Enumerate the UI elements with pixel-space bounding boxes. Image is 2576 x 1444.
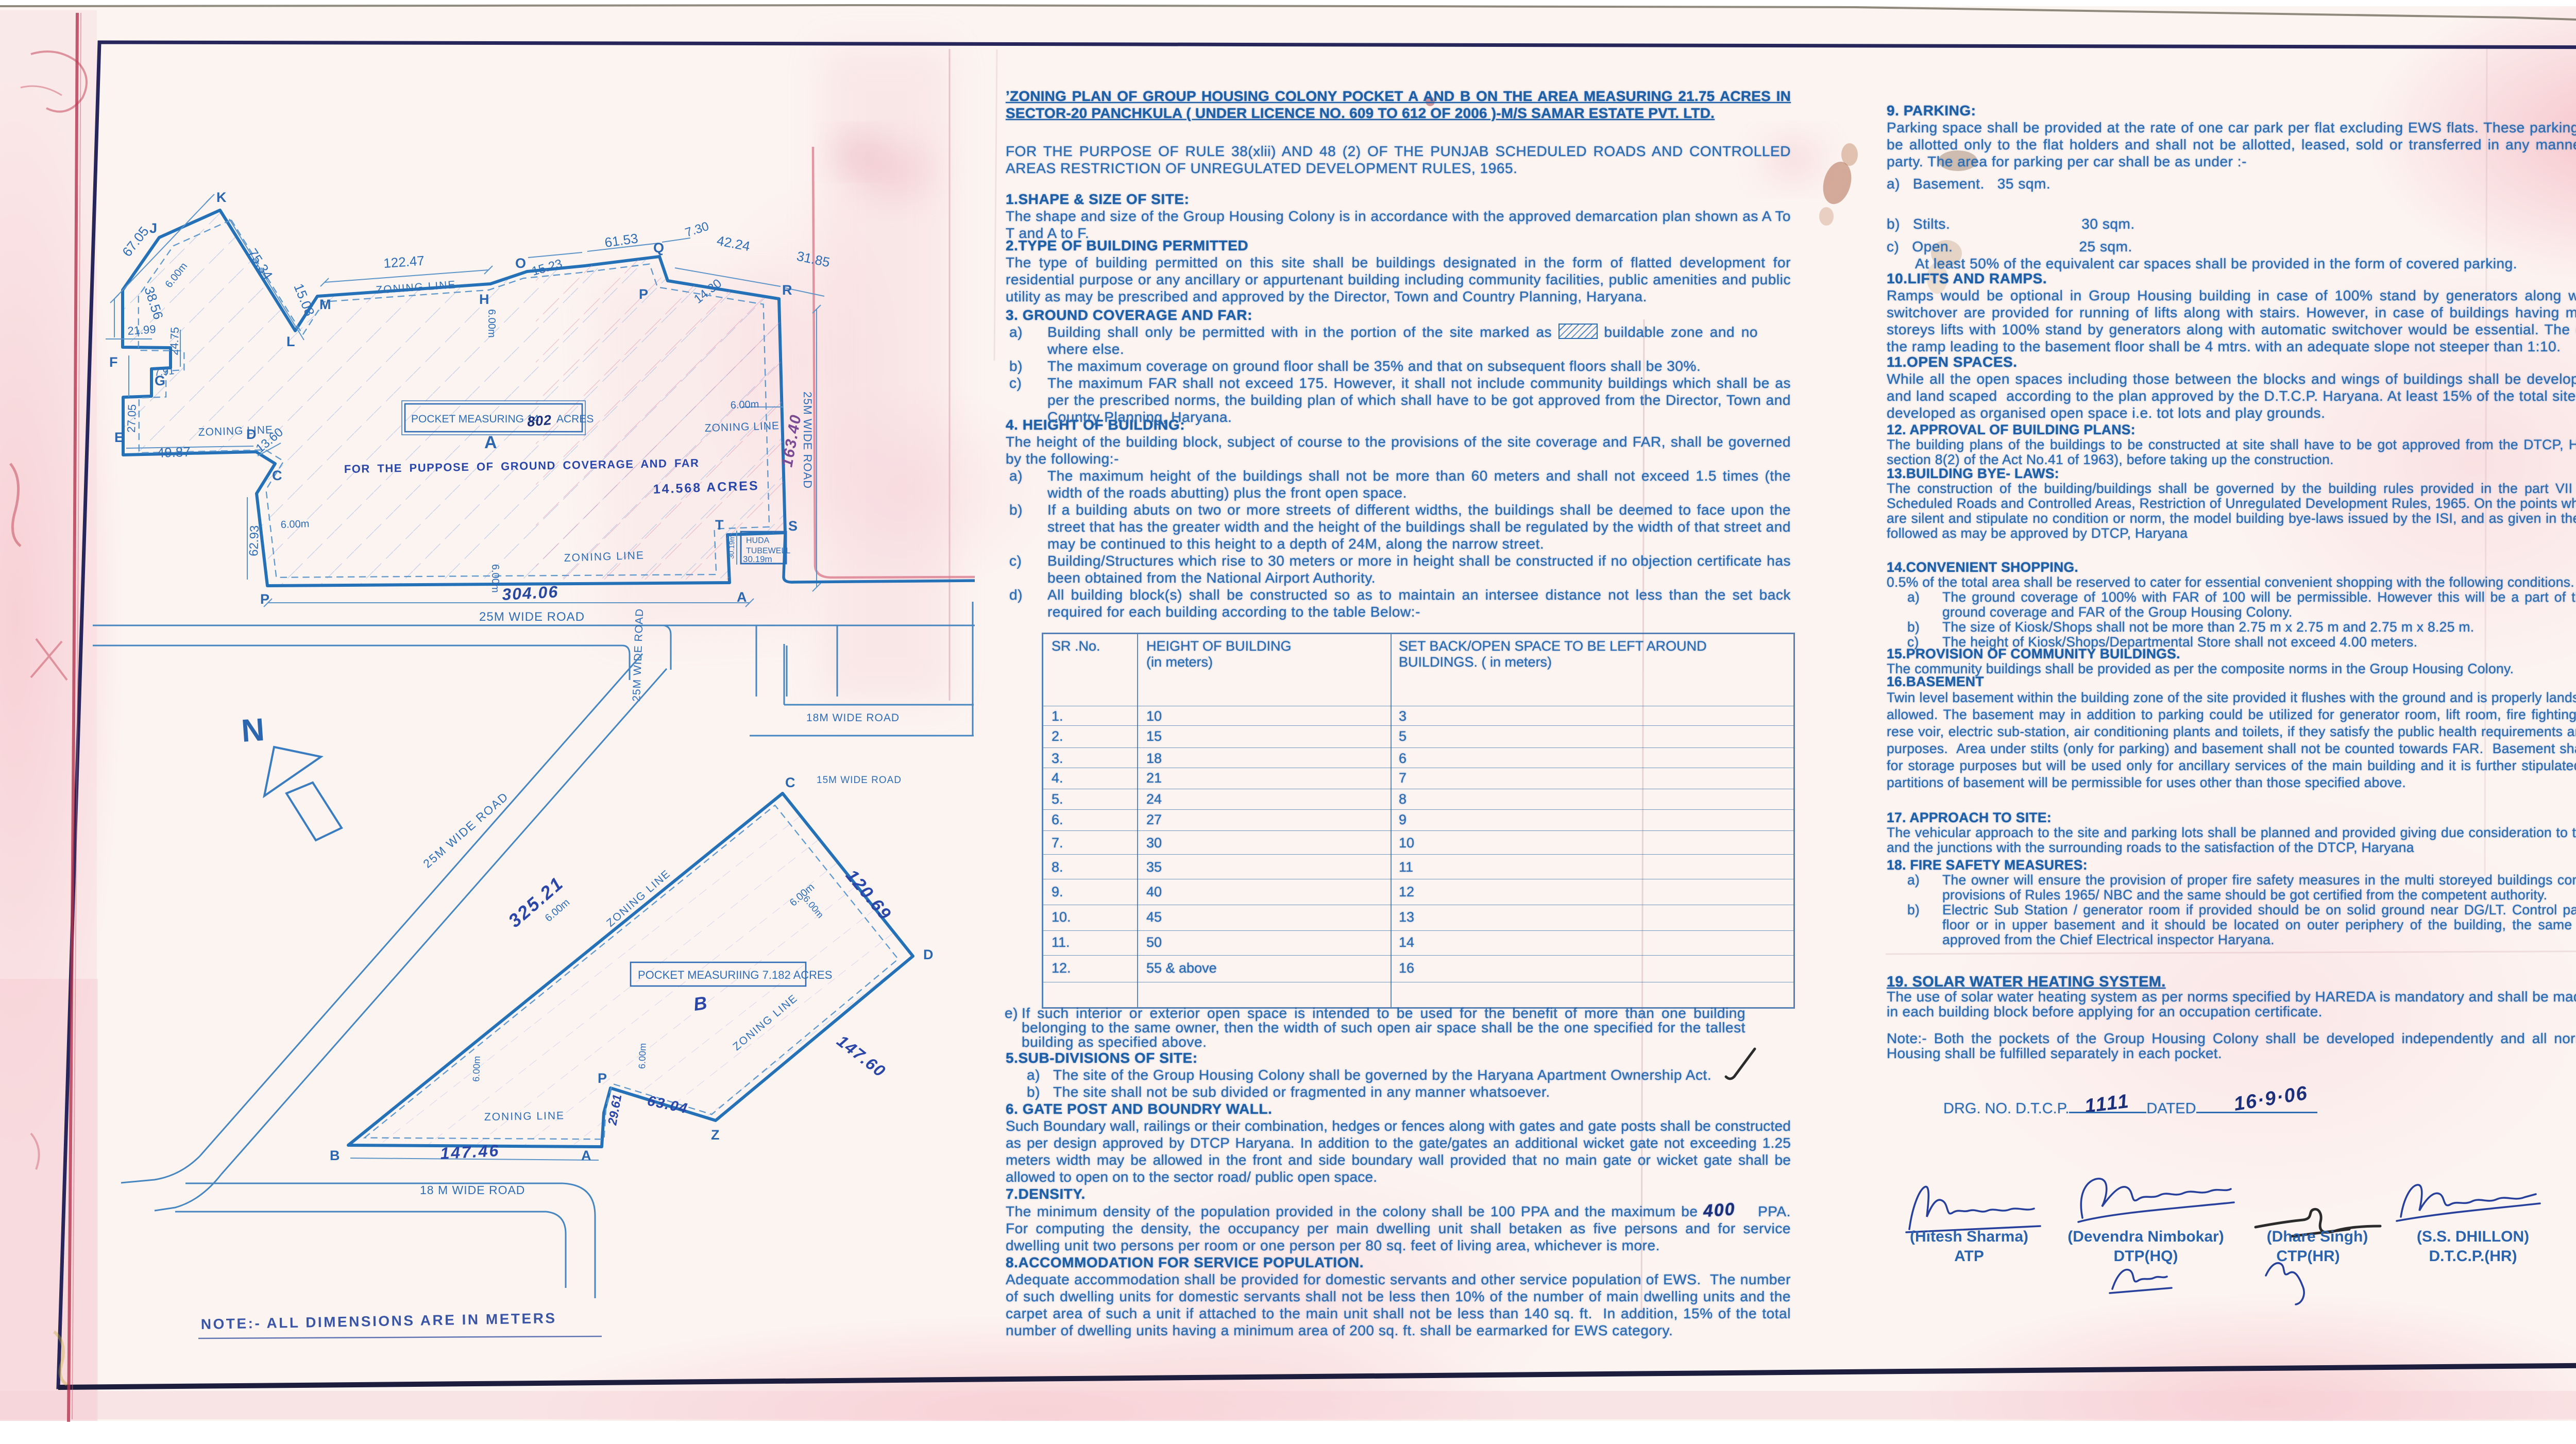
- svg-text:15M WIDE ROAD: 15M WIDE ROAD: [817, 775, 902, 786]
- svg-text:H: H: [479, 292, 489, 307]
- svg-text:25M WIDE ROAD: 25M WIDE ROAD: [801, 392, 814, 489]
- svg-text:L: L: [286, 334, 295, 349]
- svg-text:147.60: 147.60: [834, 1031, 890, 1081]
- svg-text:CTP(HR): CTP(HR): [2276, 1248, 2340, 1265]
- svg-text:J: J: [149, 220, 157, 236]
- svg-text:24.75: 24.75: [167, 327, 181, 355]
- svg-text:21.99: 21.99: [127, 322, 157, 337]
- svg-text:6.00m: 6.00m: [486, 309, 497, 338]
- svg-text:C: C: [785, 775, 795, 790]
- svg-text:M: M: [319, 297, 331, 312]
- svg-text:A: A: [484, 433, 497, 452]
- svg-text:49.87: 49.87: [157, 444, 191, 461]
- svg-text:POCKET MEASURING 14: POCKET MEASURING 14: [411, 413, 539, 425]
- svg-text:F: F: [109, 354, 118, 370]
- svg-text:S: S: [788, 518, 798, 534]
- svg-text:18 M WIDE ROAD: 18 M WIDE ROAD: [420, 1183, 525, 1197]
- svg-text:P: P: [598, 1071, 607, 1086]
- svg-text:HUDA: HUDA: [746, 536, 770, 545]
- svg-text:G: G: [155, 373, 165, 388]
- svg-text:(Hitesh Sharma): (Hitesh Sharma): [1910, 1228, 2028, 1245]
- svg-text:(Dhare Singh): (Dhare Singh): [2267, 1228, 2368, 1245]
- svg-text:K: K: [216, 190, 227, 205]
- svg-text:(S.S. DHILLON): (S.S. DHILLON): [2417, 1228, 2529, 1245]
- svg-text:42.24: 42.24: [716, 232, 752, 254]
- svg-text:27.05: 27.05: [125, 404, 139, 433]
- svg-text:6.00m: 6.00m: [730, 399, 759, 411]
- svg-text:Z: Z: [711, 1127, 720, 1143]
- svg-text:802: 802: [527, 412, 552, 430]
- svg-text:A: A: [737, 589, 747, 605]
- svg-text:NOTE:- ALL DIMENSIONS ARE IN M: NOTE:- ALL DIMENSIONS ARE IN METERS: [201, 1310, 557, 1332]
- svg-text:E: E: [114, 430, 124, 445]
- svg-text:122.47: 122.47: [383, 253, 425, 271]
- svg-text:62.93: 62.93: [247, 525, 262, 556]
- svg-text:18M WIDE ROAD: 18M WIDE ROAD: [806, 712, 900, 724]
- svg-text:25M WIDE ROAD: 25M WIDE ROAD: [479, 610, 585, 624]
- svg-text:B: B: [330, 1148, 340, 1163]
- svg-text:POCKET MEASURIING 7.182 ACRES: POCKET MEASURIING 7.182 ACRES: [638, 969, 832, 981]
- svg-text:25M WIDE ROAD: 25M WIDE ROAD: [631, 608, 646, 702]
- svg-text:O: O: [515, 256, 526, 271]
- svg-text:DTP(HQ): DTP(HQ): [2114, 1248, 2178, 1265]
- svg-text:T: T: [715, 517, 724, 533]
- svg-text:ACRES: ACRES: [556, 413, 594, 425]
- svg-text:6.00m: 6.00m: [489, 564, 501, 593]
- svg-text:C: C: [272, 468, 282, 483]
- svg-text:147.46: 147.46: [439, 1141, 500, 1163]
- svg-text:D: D: [246, 427, 257, 442]
- svg-text:6.00m: 6.00m: [471, 1056, 482, 1082]
- svg-text:D.T.C.P.(HR): D.T.C.P.(HR): [2429, 1248, 2517, 1265]
- svg-text:ZONING LINE: ZONING LINE: [484, 1110, 565, 1123]
- svg-text:ATP: ATP: [1954, 1248, 1984, 1265]
- svg-text:30.19m: 30.19m: [743, 554, 772, 564]
- svg-text:R: R: [782, 282, 792, 298]
- svg-text:6.00m: 6.00m: [637, 1043, 648, 1069]
- svg-text:N: N: [240, 712, 265, 749]
- svg-text:6.00m: 6.00m: [280, 518, 309, 531]
- svg-text:(Devendra Nimbokar): (Devendra Nimbokar): [2067, 1228, 2224, 1245]
- svg-text:30.19m: 30.19m: [727, 535, 736, 559]
- svg-text:7.30: 7.30: [684, 219, 711, 240]
- svg-text:P: P: [639, 286, 648, 302]
- svg-text:304.06: 304.06: [501, 582, 559, 604]
- svg-text:A: A: [581, 1148, 591, 1163]
- svg-text:25M WIDE ROAD: 25M WIDE ROAD: [420, 789, 511, 870]
- svg-text:P: P: [260, 591, 269, 607]
- svg-text:D: D: [923, 947, 934, 962]
- svg-text:Q: Q: [653, 240, 664, 256]
- svg-text:61.53: 61.53: [604, 230, 639, 250]
